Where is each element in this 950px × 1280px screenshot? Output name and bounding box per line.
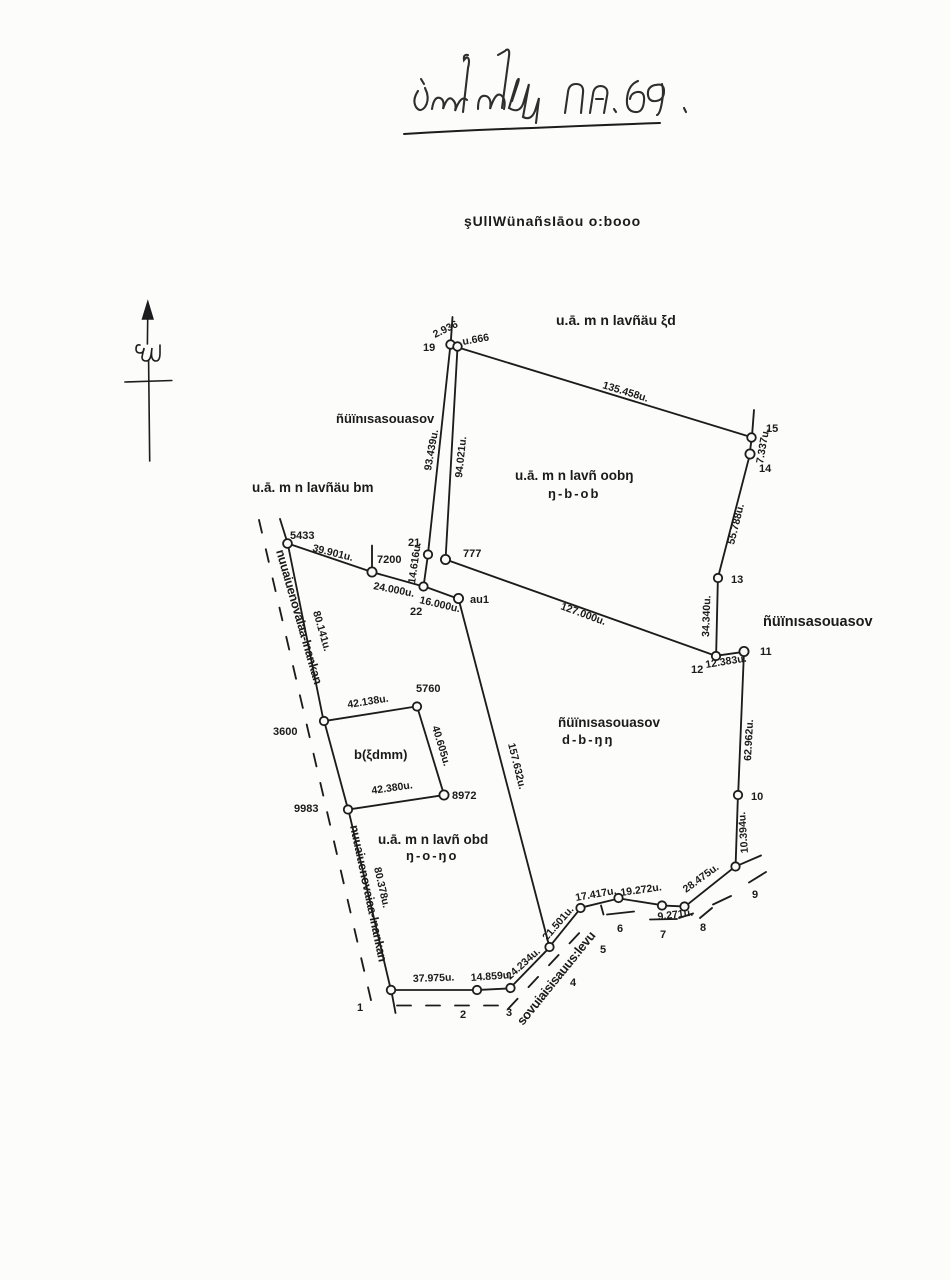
svg-text:6: 6 [617,923,623,935]
svg-text:777: 777 [463,548,481,560]
svg-text:u.ā. m n lavñäu bm: u.ā. m n lavñäu bm [252,480,374,495]
svg-text:10.394u.: 10.394u. [736,811,751,853]
svg-text:40.605u.: 40.605u. [429,724,453,767]
svg-text:u.ā. m n lavñ obd: u.ā. m n lavñ obd [378,832,488,847]
svg-text:8: 8 [700,922,706,934]
svg-text:1: 1 [357,1002,363,1014]
svg-text:u.666: u.666 [461,331,490,348]
svg-text:ŋ-o-ŋo: ŋ-o-ŋo [406,848,458,863]
svg-text:7: 7 [660,929,666,941]
svg-text:127.000u.: 127.000u. [559,601,608,628]
svg-text:d-b-ŋŋ: d-b-ŋŋ [562,732,614,747]
svg-text:62.962u.: 62.962u. [742,719,756,761]
svg-text:sovuiaisisauus:levu: sovuiaisisauus:levu [514,928,599,1028]
svg-text:19: 19 [423,342,435,354]
svg-text:8972: 8972 [452,790,476,802]
svg-text:37.975u.: 37.975u. [413,972,455,985]
svg-text:2.936: 2.936 [431,318,460,340]
svg-text:14.859u.: 14.859u. [470,969,512,984]
svg-text:5760: 5760 [416,683,440,695]
svg-text:5433: 5433 [290,530,314,542]
svg-text:11: 11 [760,646,772,658]
svg-text:13: 13 [731,574,743,586]
svg-text:135.458u.: 135.458u. [601,379,650,404]
svg-text:7.337u.: 7.337u. [754,427,772,464]
svg-text:28.475u.: 28.475u. [681,861,722,895]
svg-text:9983: 9983 [294,803,318,815]
svg-text:4: 4 [570,977,577,989]
svg-text:10: 10 [751,791,763,803]
svg-text:ñüïnısasouasov: ñüïnısasouasov [336,411,435,426]
svg-text:39.901u.: 39.901u. [311,542,354,564]
svg-text:42.380u.: 42.380u. [371,779,414,797]
svg-text:3: 3 [506,1007,512,1019]
svg-text:au1: au1 [470,594,489,606]
svg-text:12: 12 [691,664,703,676]
svg-text:ñüïnısasouasov: ñüïnısasouasov [763,614,873,630]
svg-text:3600: 3600 [273,726,297,738]
svg-text:şUllWünañsIāou o:booo: şUllWünañsIāou o:booo [464,213,641,229]
svg-text:94.021u.: 94.021u. [453,436,469,479]
svg-text:55.788u.: 55.788u. [725,503,747,546]
svg-text:u.ā. m n lavñäu ξd: u.ā. m n lavñäu ξd [556,312,676,328]
svg-text:ñüïnısasouasov: ñüïnısasouasov [558,715,661,730]
svg-text:u.ā. m n lavñ oobŋ: u.ā. m n lavñ oobŋ [515,468,634,483]
svg-text:7200: 7200 [377,554,401,566]
svg-text:2: 2 [460,1009,466,1021]
svg-text:157.632u.: 157.632u. [505,742,528,791]
svg-text:9: 9 [752,889,758,901]
svg-text:19.272u.: 19.272u. [620,881,663,899]
svg-text:42.138u.: 42.138u. [347,693,390,711]
svg-text:b(ξdmm): b(ξdmm) [354,747,407,762]
svg-text:5: 5 [600,944,606,956]
svg-text:ŋ-b-ob: ŋ-b-ob [548,486,600,501]
svg-text:22: 22 [410,606,422,618]
svg-text:34.340u.: 34.340u. [700,595,713,637]
